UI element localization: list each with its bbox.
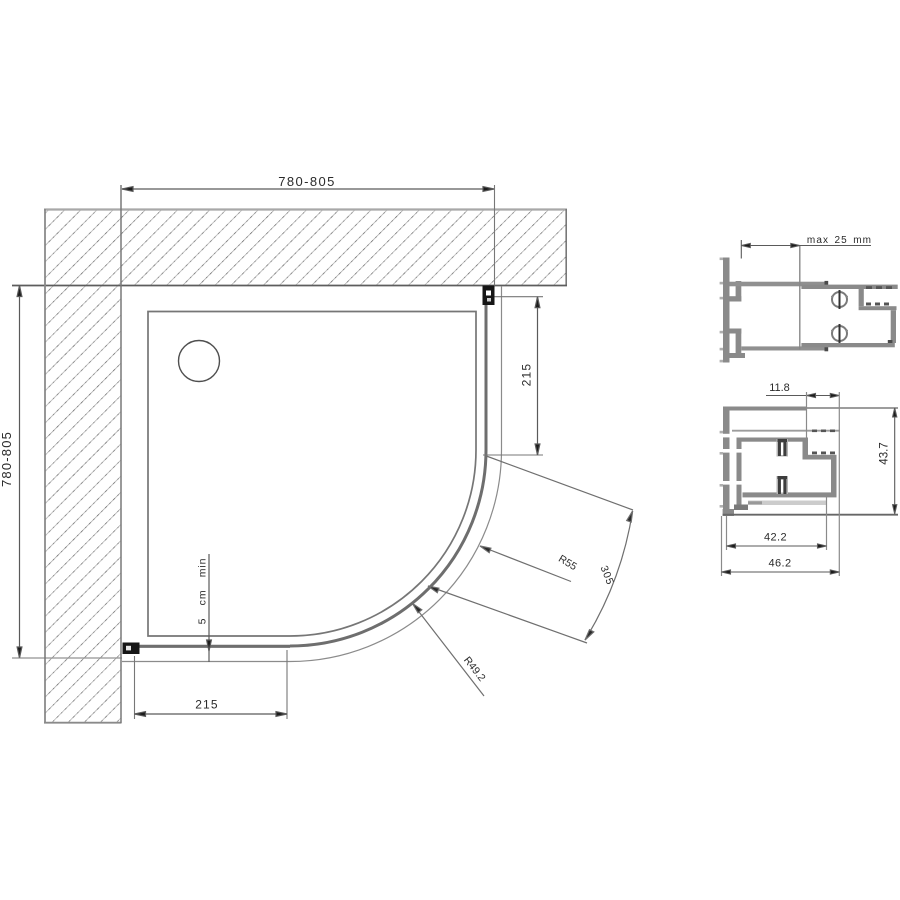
svg-text:11.8: 11.8 <box>769 382 790 394</box>
svg-text:5 cm min: 5 cm min <box>197 558 209 625</box>
svg-text:max 25 mm: max 25 mm <box>807 235 872 246</box>
svg-text:305: 305 <box>598 564 616 587</box>
svg-text:780-805: 780-805 <box>278 174 336 189</box>
svg-text:43.7: 43.7 <box>879 442 891 464</box>
svg-text:42.2: 42.2 <box>764 532 787 544</box>
svg-text:215: 215 <box>195 698 219 712</box>
svg-text:R49.2: R49.2 <box>461 654 488 684</box>
svg-text:46.2: 46.2 <box>768 558 791 570</box>
svg-text:215: 215 <box>520 363 534 387</box>
svg-text:R55: R55 <box>556 553 579 573</box>
svg-text:780-805: 780-805 <box>0 431 14 487</box>
